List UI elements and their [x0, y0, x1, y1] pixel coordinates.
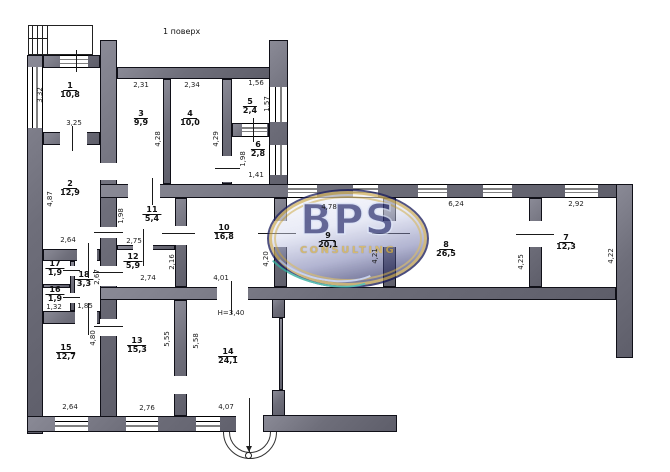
wall-segment	[100, 287, 616, 300]
dimension-label: 1,32	[46, 303, 62, 311]
dimension-label-vertical: 2,16	[168, 254, 176, 270]
dimension-label: 2,92	[568, 200, 584, 208]
room-label-5: 52,4	[243, 98, 257, 116]
room-label-9: 920,1	[318, 232, 338, 250]
room-label-8: 826,5	[436, 241, 456, 259]
window-symbol	[269, 145, 288, 175]
porch-hatch-line	[47, 25, 48, 55]
dimension-tick	[253, 118, 254, 142]
room-area: 20,1	[318, 241, 338, 249]
dimension-label: H=3,40	[218, 309, 245, 317]
dimension-label-vertical: 4,29	[212, 131, 220, 147]
dimension-tick	[94, 326, 123, 327]
dimension-tick	[215, 168, 240, 169]
dimension-tick	[72, 126, 73, 151]
dimension-label-vertical: 4,22	[607, 248, 615, 264]
room-label-14: 1424,1	[218, 348, 238, 366]
porch-hatch-line	[42, 25, 43, 55]
room-area: 15,3	[127, 346, 147, 354]
room-label-6: 62,8	[251, 141, 265, 159]
dimension-label: 2,64	[60, 236, 76, 244]
door-opening	[100, 163, 117, 180]
wall-segment	[279, 318, 283, 390]
door-opening	[75, 311, 97, 324]
wall-segment	[174, 300, 187, 416]
room-label-3: 39,9	[134, 110, 148, 128]
porch-hatch-line	[32, 25, 33, 55]
dimension-label: 4,07	[218, 403, 234, 411]
dimension-label-vertical: 1,98	[239, 151, 247, 167]
wall-segment	[163, 79, 171, 184]
wall-segment	[117, 67, 270, 79]
room-area: 10,0	[180, 119, 200, 127]
room-area: 5,9	[123, 262, 142, 270]
door-opening	[100, 266, 117, 286]
wall-segment	[272, 390, 285, 416]
room-area: 9,9	[134, 119, 148, 127]
room-area: 3,3	[74, 280, 93, 288]
room-area: 2,8	[251, 150, 265, 158]
door-opening	[60, 132, 87, 145]
room-area: 2,4	[243, 107, 257, 115]
door-opening	[217, 287, 248, 300]
room-area: 12,3	[556, 243, 576, 251]
window-symbol	[126, 416, 158, 432]
dimension-tick	[63, 297, 80, 298]
dimension-label-vertical: 2,67	[93, 269, 101, 285]
room-area: 24,1	[218, 357, 238, 365]
wall-segment	[616, 184, 633, 358]
dimension-label: 2,74	[140, 274, 156, 282]
door-opening	[174, 376, 187, 394]
dimension-label-vertical: 4,20	[262, 251, 270, 267]
dimension-label: 2,75	[126, 237, 142, 245]
dimension-tick	[143, 229, 144, 266]
dimension-label-vertical: 4,80	[89, 330, 97, 346]
door-opening	[222, 156, 232, 182]
dimension-tick	[29, 38, 47, 39]
entrance-axis-arrow	[249, 398, 250, 452]
room-area: 16,8	[214, 233, 234, 241]
room-area: 26,5	[436, 250, 456, 258]
room-label-11: 115,4	[142, 206, 161, 224]
dimension-label-vertical: 1,57	[263, 96, 271, 112]
room-label-16: 161,9	[45, 286, 64, 304]
window-symbol	[55, 416, 88, 432]
room-label-18: 183,3	[74, 271, 93, 289]
room-area: 5,4	[142, 215, 161, 223]
dimension-label: 4,78	[321, 203, 337, 211]
bps-logo: BPS CONSULTING	[267, 189, 429, 288]
room-area: 12,9	[60, 189, 80, 197]
floor-plan: 1 поверх 110,8212,939,9410,052,462,8712,…	[0, 0, 670, 472]
dimension-tick	[76, 50, 77, 72]
dimension-label-vertical: 4,21	[371, 248, 379, 264]
wall-segment	[263, 415, 397, 432]
dimension-tick	[516, 234, 554, 235]
door-opening	[128, 184, 160, 198]
wall-segment	[272, 299, 285, 318]
porch-hatch-line	[37, 25, 38, 55]
door-opening	[77, 249, 97, 261]
logo-subtitle-text: CONSULTING	[300, 245, 396, 256]
logo-brand-text: BPS	[300, 199, 396, 241]
dimension-label: 2,76	[139, 404, 155, 412]
room-label-7: 712,3	[556, 234, 576, 252]
dimension-tick	[152, 178, 153, 205]
room-area: 10,8	[60, 91, 80, 99]
dimension-label: 1,41	[248, 171, 264, 179]
dimension-label-vertical: 4,28	[154, 131, 162, 147]
entrance-axis-circle	[245, 452, 252, 459]
dimension-tick	[162, 233, 195, 234]
room-label-17: 171,9	[45, 260, 64, 278]
dimension-label-vertical: 3,32	[36, 87, 44, 103]
dimension-label: 1,85	[77, 302, 93, 310]
dimension-label: 4,01	[213, 274, 229, 282]
room-label-10: 1016,8	[214, 224, 234, 242]
dimension-label-vertical: 4,25	[517, 254, 525, 270]
room-label-13: 1315,3	[127, 337, 147, 355]
window-symbol	[242, 123, 267, 137]
room-area: 12,7	[56, 353, 76, 361]
window-symbol	[269, 87, 288, 122]
room-area: 1,9	[45, 269, 64, 277]
window-symbol	[565, 184, 598, 198]
window-symbol	[60, 55, 88, 68]
room-label-4: 410,0	[180, 110, 200, 128]
door-opening	[100, 319, 117, 336]
floor-title: 1 поверх	[163, 27, 200, 36]
dimension-label: 2,64	[62, 403, 78, 411]
dimension-label-vertical: 5,55	[163, 331, 171, 347]
dimension-label: 2,31	[133, 81, 149, 89]
dimension-label: 2,34	[184, 81, 200, 89]
dimension-label-vertical: 1,98	[117, 208, 125, 224]
dimension-label: 1,56	[248, 79, 264, 87]
room-label-2: 212,9	[60, 180, 80, 198]
door-opening	[70, 293, 75, 303]
window-symbol	[483, 184, 512, 198]
room-label-15: 1512,7	[56, 344, 76, 362]
room-label-12: 125,9	[123, 253, 142, 271]
dimension-label: 6,24	[448, 200, 464, 208]
dimension-label-vertical: 5,58	[192, 333, 200, 349]
dimension-tick	[94, 232, 123, 233]
dimension-label-vertical: 4,87	[46, 191, 54, 207]
dimension-label: 3,25	[66, 119, 82, 127]
door-opening	[175, 226, 187, 245]
room-label-1: 110,8	[60, 82, 80, 100]
window-symbol	[196, 416, 220, 432]
